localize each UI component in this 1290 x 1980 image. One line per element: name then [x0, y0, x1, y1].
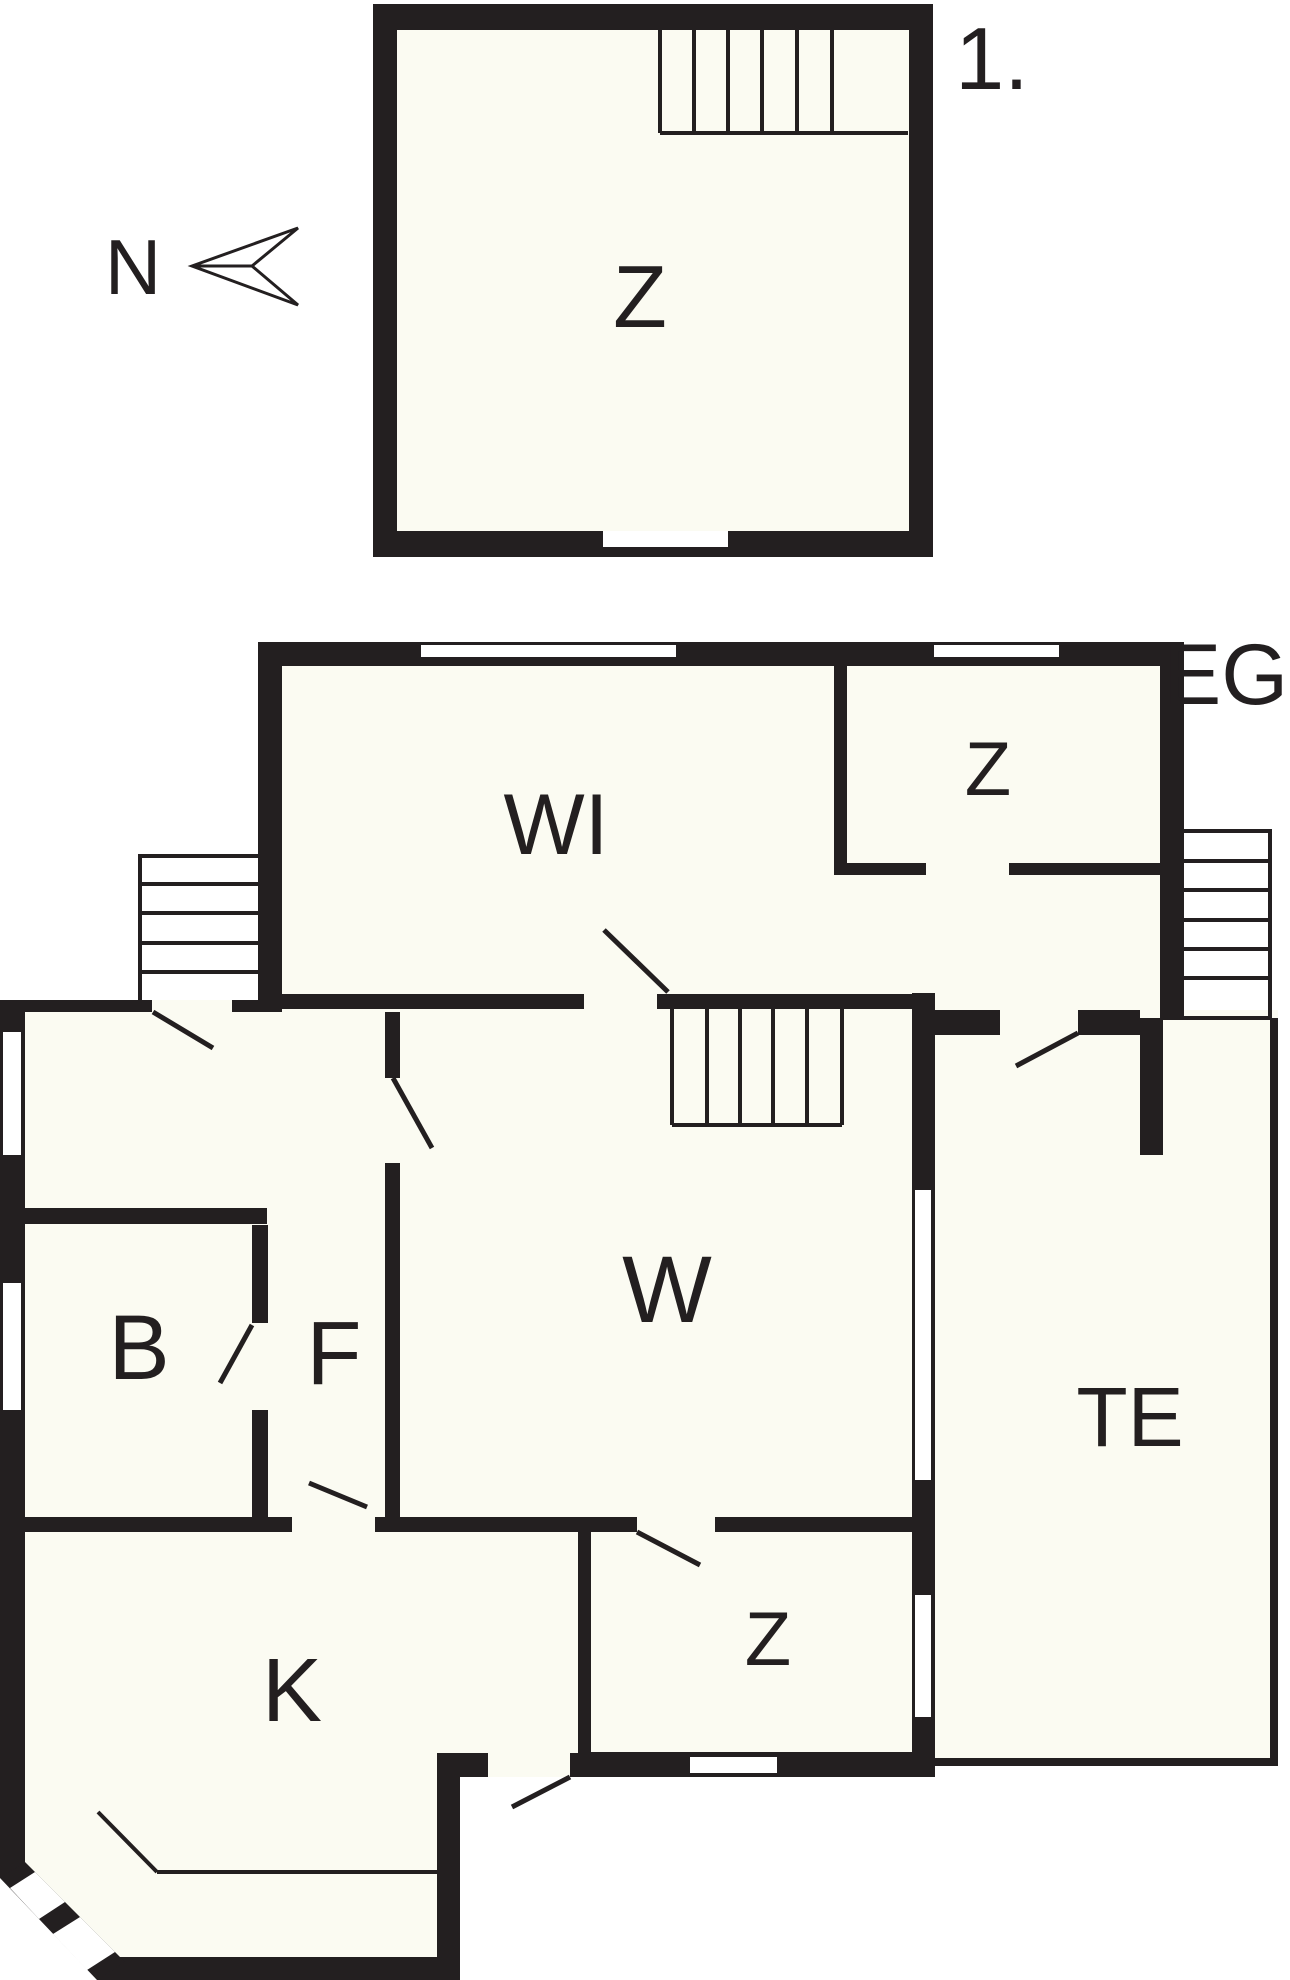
label-room-b: B: [108, 1297, 169, 1399]
eg-wall-veranda-top-b: [570, 1753, 591, 1777]
eg-area-top: [258, 642, 1184, 1012]
eg-wall-below-stair: [1140, 1018, 1163, 1155]
eg-left-window-1-edge2: [21, 1032, 25, 1155]
eg-wall-entrance-b: [232, 1000, 280, 1012]
eg-wall-bottom: [97, 1957, 460, 1980]
eg-wall-wi-z-divider: [834, 666, 847, 875]
eg-te-window-2-edge2: [931, 1595, 935, 1717]
eg-entrance-stairs-left: [138, 856, 258, 1000]
eg-wall-te-door-b: [1078, 1010, 1140, 1035]
eg-wall-k-z-divider: [578, 1532, 591, 1752]
label-north-label: N: [105, 223, 161, 311]
label-room-k: K: [262, 1641, 322, 1741]
door-swing-veranda: [512, 1777, 570, 1807]
eg-te-wall-right-thin: [1270, 1018, 1278, 1766]
upper-wall-top: [373, 4, 933, 30]
label-room-wi: WI: [503, 777, 608, 873]
eg-wall-veranda-right: [437, 1753, 460, 1957]
floorplan-drawing: 1.NZEGWIZWBFKZTE: [0, 0, 1290, 1980]
eg-left-window-2-edge: [0, 1283, 3, 1410]
upper-wall-right: [909, 4, 933, 557]
floorplan-page: 1.NZEGWIZWBFKZTE: [0, 0, 1290, 1980]
eg-wall-te-door-a: [925, 1010, 1000, 1035]
label-room-z-eg-top: Z: [965, 727, 1011, 812]
eg-te-window-2-edge: [912, 1595, 915, 1717]
eg-wall-bf-bottom-b: [375, 1517, 637, 1532]
eg-z-bottom-window: [690, 1757, 777, 1773]
eg-wall-b-right-b: [252, 1410, 268, 1517]
label-room-w: W: [622, 1237, 712, 1343]
eg-wall-wi-left: [258, 642, 282, 1012]
label-room-te: TE: [1076, 1370, 1183, 1464]
eg-wall-f-w-b: [385, 1163, 400, 1517]
eg-wall-f-w-a: [385, 1012, 400, 1078]
eg-te-window-1-edge: [912, 1190, 915, 1480]
upper-wall-left: [373, 4, 397, 557]
eg-top-window-2: [934, 645, 1059, 657]
label-room-z-upper: Z: [613, 247, 667, 346]
eg-wall-ztop-bottom-b: [1009, 863, 1160, 875]
eg-left-window-2-edge2: [21, 1283, 25, 1410]
eg-wall-b-right-a: [252, 1225, 268, 1323]
eg-wall-wi-bottom-b: [657, 994, 923, 1009]
eg-wall-ztop-bottom-a: [834, 863, 926, 875]
eg-top-window-1: [421, 645, 676, 657]
eg-te-wall-bottom-thin: [935, 1758, 1278, 1766]
eg-wall-bf-bottom-c: [715, 1517, 912, 1532]
eg-wall-b-top: [0, 1208, 267, 1224]
eg-wall-wi-bottom-a: [280, 994, 584, 1009]
label-floor-eg-label: EG: [1164, 627, 1288, 723]
label-room-z-eg-bottom: Z: [745, 1597, 791, 1682]
label-room-f: F: [307, 1304, 362, 1404]
eg-wall-te-left-b: [912, 1480, 935, 1595]
label-floor-1-label: 1.: [955, 9, 1028, 108]
eg-wall-entrance-a: [23, 1000, 152, 1012]
eg-wall-bf-bottom-a: [25, 1517, 292, 1532]
north-arrow-icon: [192, 228, 298, 305]
eg-te-window-1-edge2: [931, 1190, 935, 1480]
eg-left-window-1-edge: [0, 1032, 3, 1155]
upper-bottom-window: [603, 531, 728, 547]
